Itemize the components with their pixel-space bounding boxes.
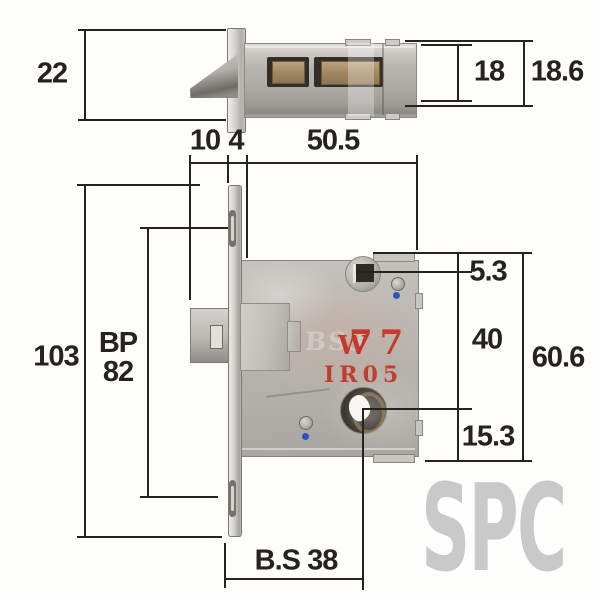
screw-slot-top-inner	[231, 216, 234, 241]
dim-leader	[362, 408, 364, 590]
edge-highlight	[245, 46, 414, 48]
dim-line	[147, 228, 149, 497]
case-seam	[382, 44, 384, 115]
rivet-bottom-left	[299, 416, 313, 430]
dim-line	[457, 253, 459, 462]
blue-dot-top	[393, 292, 400, 299]
case-tab-top	[373, 253, 415, 262]
dim-tick	[78, 29, 226, 31]
brass-follower-small	[272, 61, 305, 84]
case-tab	[385, 113, 400, 120]
dim-label-bottom-offset: 15.3	[462, 421, 514, 454]
screw-slot-bottom-inner	[231, 486, 234, 511]
dim-tick	[140, 496, 218, 498]
dim-tick	[425, 460, 532, 462]
dim-line	[457, 45, 459, 102]
dim-label-plate-thickness: 4	[228, 125, 243, 158]
dim-tick	[421, 100, 472, 102]
dim-tick	[246, 155, 248, 258]
case-tab-right	[415, 420, 423, 436]
dim-line	[84, 30, 86, 121]
spindle-hole	[353, 264, 374, 284]
bp-value: 82	[103, 356, 133, 388]
dim-tick	[77, 184, 200, 186]
dim-tick	[140, 227, 228, 229]
dim-line	[224, 578, 364, 580]
dim-label-top-offset: 5.3	[469, 256, 506, 289]
dim-tick	[224, 543, 226, 588]
dim-line	[189, 162, 418, 164]
dim-tick	[227, 155, 229, 183]
latch-guide-plate	[240, 303, 290, 371]
lock-dimension-diagram: BS3 W 77 IR05 22 18 18.6 10 4 50.5 103 B…	[0, 0, 600, 600]
stamp-model-number: 77	[349, 323, 410, 363]
metal-sheen	[348, 43, 374, 116]
dim-line	[84, 185, 86, 538]
dim-tick	[373, 252, 532, 254]
dim-label-case-inner-height: 18	[474, 56, 504, 89]
dim-tick	[78, 119, 226, 121]
dim-label-backset: B.S 38	[255, 545, 338, 578]
stamp-code: IR05	[324, 362, 403, 388]
dim-label-plate-width: 22	[37, 58, 67, 91]
dim-tick	[77, 536, 222, 538]
dim-label-case-outer-height: 18.6	[531, 56, 583, 89]
dim-line	[522, 253, 524, 462]
dim-label-screw-pitch: BP 82	[99, 329, 137, 387]
dim-leader	[356, 271, 472, 273]
latch-bolt-slot	[210, 325, 223, 349]
dim-tick	[416, 155, 418, 250]
blue-dot-bottom	[302, 433, 309, 440]
spc-watermark: SPC	[421, 470, 565, 590]
bp-label: BP	[99, 327, 137, 359]
rivet-top-right	[391, 277, 405, 291]
case-tab-bottom	[373, 454, 415, 463]
dim-label-plate-height: 103	[33, 341, 78, 374]
dim-line	[523, 41, 525, 107]
dim-label-latch-projection: 10	[190, 125, 220, 158]
case-tab	[385, 39, 400, 46]
dim-tick	[405, 40, 533, 42]
latch-guide-step	[287, 321, 301, 352]
dim-label-hole-pitch: 40	[472, 324, 502, 357]
dim-label-case-depth: 50.5	[307, 125, 359, 158]
dim-leader	[362, 408, 472, 410]
dim-tick	[405, 105, 533, 107]
dim-label-case-height: 60.6	[532, 342, 584, 375]
dim-tick	[421, 44, 472, 46]
edge-highlight	[242, 448, 415, 450]
case-tab-right	[415, 293, 423, 309]
